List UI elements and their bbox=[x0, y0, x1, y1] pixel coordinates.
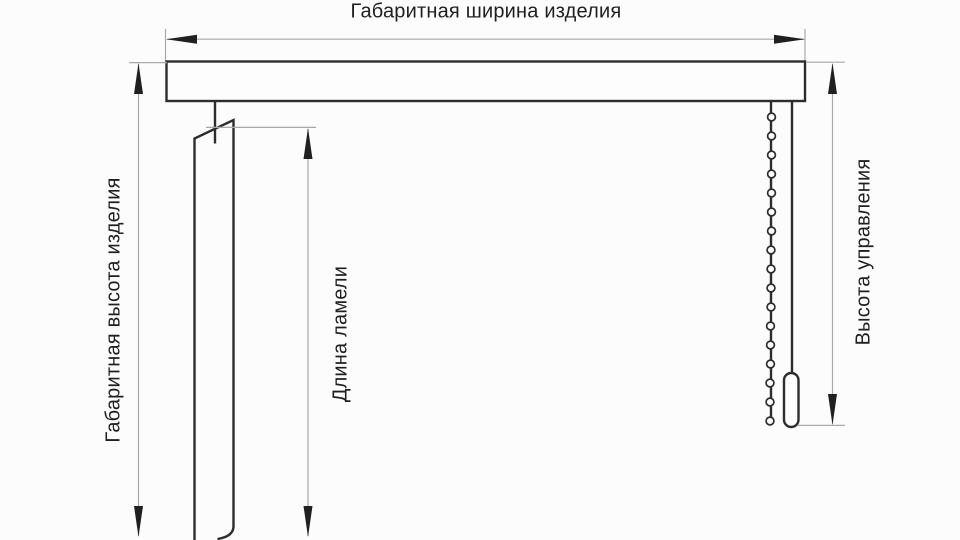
chain-bead bbox=[766, 398, 774, 406]
chain-bead bbox=[768, 208, 776, 216]
headrail bbox=[167, 62, 806, 102]
chain-bead bbox=[767, 284, 775, 292]
chain-bead bbox=[768, 151, 776, 159]
chain-bead bbox=[768, 227, 776, 235]
chain-bead bbox=[767, 303, 775, 311]
chain-bead bbox=[767, 360, 775, 368]
arrowhead-down-icon bbox=[304, 506, 313, 537]
label-overall-width: Габаритная ширина изделия bbox=[351, 1, 622, 24]
arrowhead-up-icon bbox=[134, 63, 143, 94]
arrowhead-right-icon bbox=[774, 35, 805, 44]
arrowhead-up-icon bbox=[304, 128, 313, 159]
chain-bead bbox=[767, 265, 775, 273]
ball-chain bbox=[766, 101, 798, 427]
chain-bead bbox=[768, 132, 776, 140]
dimension-slat-length bbox=[206, 127, 316, 537]
chain-bead bbox=[766, 417, 774, 425]
blinds-measurement-diagram: Габаритная ширина изделия Габаритная выс… bbox=[0, 0, 960, 540]
dimension-control-height bbox=[798, 62, 845, 425]
chain-bead bbox=[767, 322, 775, 330]
chain-bead bbox=[768, 189, 776, 197]
label-overall-height: Габаритная высота изделия bbox=[103, 177, 126, 442]
arrowhead-up-icon bbox=[828, 63, 837, 94]
chain-bead bbox=[766, 379, 774, 387]
dimension-overall-width bbox=[166, 29, 806, 61]
chain-bead bbox=[767, 246, 775, 254]
chain-bead bbox=[768, 170, 776, 178]
slat bbox=[195, 101, 234, 540]
arrowhead-left-icon bbox=[166, 35, 197, 44]
label-slat-length: Длина ламели bbox=[330, 266, 353, 402]
arrowhead-down-icon bbox=[828, 394, 837, 425]
slat-outline bbox=[195, 120, 234, 540]
chain-bead bbox=[767, 341, 775, 349]
arrowhead-down-icon bbox=[134, 506, 143, 537]
diagram-drawing bbox=[0, 0, 960, 540]
label-control-height: Высота управления bbox=[853, 159, 876, 346]
chain-bead bbox=[768, 113, 776, 121]
dimension-overall-height bbox=[129, 63, 167, 537]
chain-weight bbox=[784, 373, 799, 427]
